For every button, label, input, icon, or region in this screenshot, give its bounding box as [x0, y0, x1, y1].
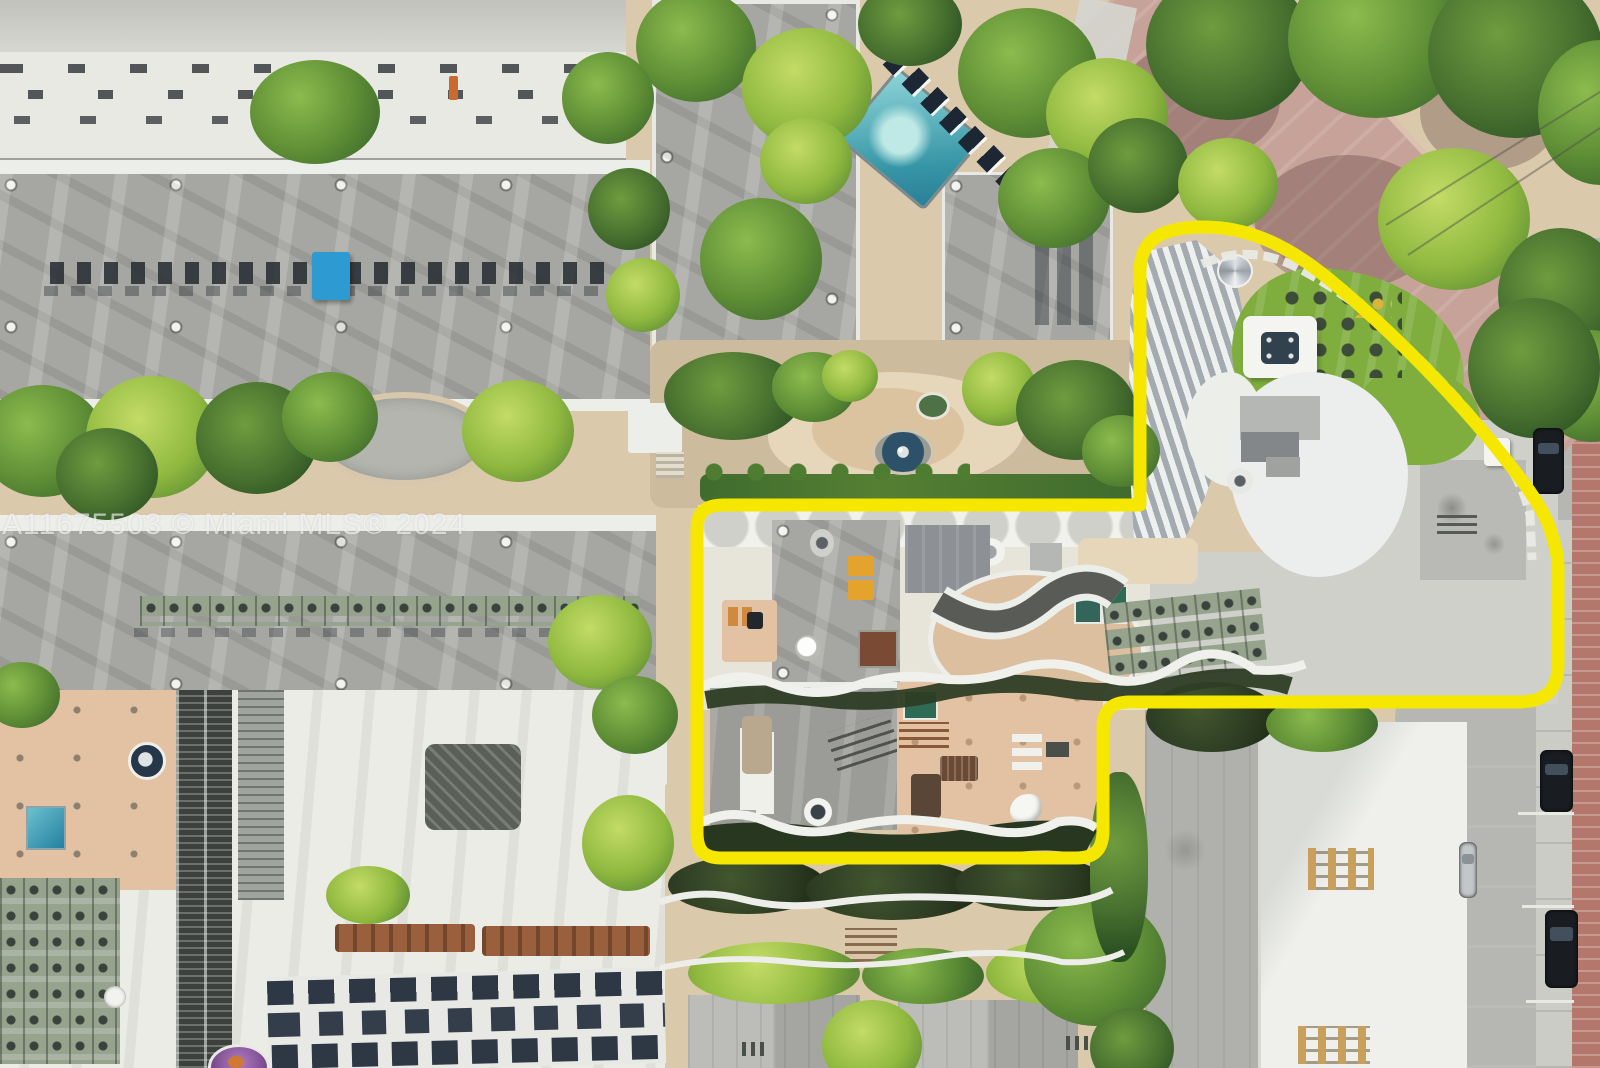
walkway-edge-1 [660, 890, 1112, 906]
aerial-photo-scene: A11675503 © Miami MLS® 2024 [0, 0, 1600, 1068]
property-boundary-outline [697, 227, 1558, 858]
power-line [1408, 128, 1600, 255]
walkway-edge-2 [660, 952, 1124, 968]
canopy-band [1202, 254, 1532, 560]
power-line [1386, 92, 1600, 225]
mls-watermark: A11675503 © Miami MLS® 2024 [2, 508, 466, 542]
hedge-band-lower [700, 835, 1090, 849]
